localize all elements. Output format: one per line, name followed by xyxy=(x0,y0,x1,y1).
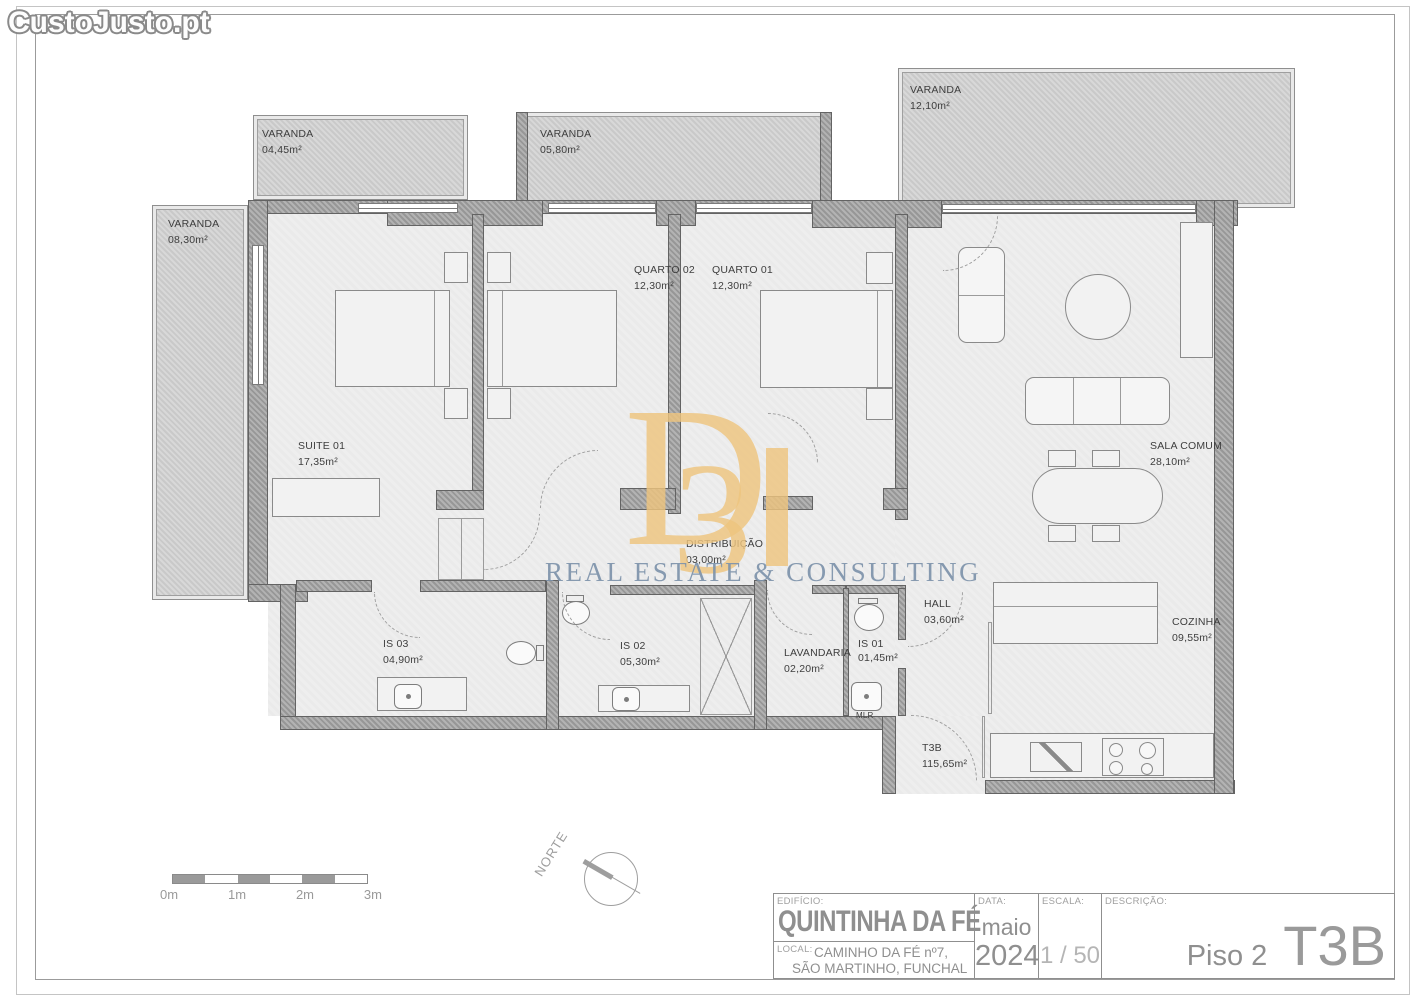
island-line xyxy=(994,606,1157,607)
nightstand xyxy=(866,252,893,284)
bathroom-sink xyxy=(394,684,422,709)
data-label: DATA: xyxy=(978,896,1006,907)
balcony-left xyxy=(152,205,248,600)
scale-seg xyxy=(335,875,367,883)
wall-entry-step xyxy=(882,716,896,794)
room-name: VARANDA xyxy=(262,126,313,142)
kitchen-cabinet-line xyxy=(988,622,992,714)
bed xyxy=(335,290,450,387)
room-area: 02,20m² xyxy=(784,661,851,677)
wall-bath-top xyxy=(420,580,546,592)
room-name: IS 03 xyxy=(383,636,423,652)
wardrobe-line xyxy=(461,519,462,579)
stove-hob xyxy=(1102,738,1164,776)
nightstand xyxy=(487,388,511,419)
room-label-varanda-05: VARANDA 05,80m² xyxy=(540,126,591,159)
scale-seg xyxy=(270,875,302,883)
room-label-is03: IS 03 04,90m² xyxy=(383,636,423,669)
room-label-varanda-08: VARANDA 08,30m² xyxy=(168,216,219,249)
room-area: 12,30m² xyxy=(634,278,695,294)
wall-bottom-right xyxy=(985,780,1235,794)
burner xyxy=(1109,743,1123,757)
room-label-quarto01: QUARTO 01 12,30m² xyxy=(712,262,773,295)
titleblock-local-cell: LOCAL: CAMINHO DA FÉ nº7, SÃO MARTINHO, … xyxy=(774,942,974,979)
room-label-varanda-12: VARANDA 12,10m² xyxy=(910,82,961,115)
scale-label: 2m xyxy=(296,887,314,902)
scale-value: 1 / 50 xyxy=(1039,942,1101,970)
scale-label: 0m xyxy=(160,887,178,902)
sofa xyxy=(1025,377,1170,425)
wall-pillar xyxy=(812,200,942,228)
room-label-varanda-04: VARANDA 04,45m² xyxy=(262,126,313,159)
nightstand xyxy=(444,252,468,283)
wall-bath-top xyxy=(296,580,372,592)
window xyxy=(358,203,458,213)
kitchen-island xyxy=(993,582,1158,644)
titleblock-edificio-cell: EDIFÍCIO: QUINTINHA DA FÉ xyxy=(774,894,974,942)
scale-bar xyxy=(172,874,368,884)
sofa-seat-line xyxy=(959,295,1004,296)
wall-bottom-left xyxy=(280,716,896,730)
room-label-hall: HALL 03,60m² xyxy=(924,596,964,629)
room-name: QUARTO 02 xyxy=(634,262,695,278)
floor-plan: MLR VARANDA 04,45m² VARANDA 05,80m² VARA… xyxy=(0,0,1414,1000)
round-table xyxy=(1065,274,1131,340)
wall-right xyxy=(1214,200,1234,794)
room-label-sala-comum: SALA COMUM 28,10m² xyxy=(1150,438,1222,471)
room-name: LAVANDARIA xyxy=(784,645,851,661)
nightstand xyxy=(444,388,468,419)
wall-is03-is02 xyxy=(546,580,559,730)
wall-corridor xyxy=(436,490,484,510)
kitchen-sink xyxy=(1030,742,1082,772)
room-area: 115,65m² xyxy=(922,756,967,772)
dining-chair xyxy=(1048,450,1076,467)
room-name: IS 02 xyxy=(620,638,660,654)
room-area: 12,30m² xyxy=(712,278,773,294)
bed-fold-line xyxy=(877,291,878,387)
room-label-t3b-total: T3B 115,65m² xyxy=(922,740,967,773)
scale-label: 1m xyxy=(228,887,246,902)
wall-is01-hall xyxy=(898,668,906,716)
date-year: 2024 xyxy=(975,942,1038,971)
room-label-lavandaria: LAVANDARIA 02,20m² xyxy=(784,645,851,678)
room-label-cozinha: COZINHA 09,55m² xyxy=(1172,614,1221,647)
burner xyxy=(1109,761,1123,775)
burner xyxy=(1139,742,1156,759)
vanity-counter xyxy=(377,677,467,711)
d3-logo-bar-icon xyxy=(766,448,788,566)
room-label-suite01: SUITE 01 17,35m² xyxy=(298,438,345,471)
dining-chair xyxy=(1092,450,1120,467)
room-area: 05,80m² xyxy=(540,142,591,158)
room-area: 09,55m² xyxy=(1172,630,1221,646)
address-line1: CAMINHO DA FÉ nº7, xyxy=(814,945,948,961)
wall-is01-hall xyxy=(898,588,906,640)
wall-quarto01-sala xyxy=(895,214,908,520)
address-line2: SÃO MARTINHO, FUNCHAL xyxy=(792,961,967,977)
sofa-seat-line xyxy=(1073,378,1074,424)
agency-subtitle: REAL ESTATE & CONSULTING xyxy=(545,557,981,588)
scale-labels: 0m 1m 2m 3m xyxy=(160,887,382,902)
burner xyxy=(1141,763,1153,775)
wall-left-lower xyxy=(280,584,296,730)
toilet xyxy=(854,604,884,631)
room-name: VARANDA xyxy=(910,82,961,98)
room-label-is01: IS 01 01,45m² xyxy=(858,638,898,665)
dresser xyxy=(272,478,380,517)
balcony-rail-pier xyxy=(516,112,528,205)
sofa-seat-line xyxy=(1120,378,1121,424)
room-area: 04,90m² xyxy=(383,652,423,668)
room-label-quarto02: QUARTO 02 12,30m² xyxy=(634,262,695,295)
room-area: 28,10m² xyxy=(1150,454,1222,470)
toilet-tank xyxy=(858,598,878,604)
room-name: VARANDA xyxy=(168,216,219,232)
local-label: LOCAL: xyxy=(777,944,813,955)
balcony-rail-pier xyxy=(820,112,832,205)
door-leaf xyxy=(982,716,985,778)
shower xyxy=(700,598,752,715)
floor-name: Piso 2 xyxy=(1187,940,1268,973)
typology: T3B xyxy=(1283,921,1386,971)
bed xyxy=(760,290,893,388)
nightstand xyxy=(487,252,511,283)
dining-chair xyxy=(1092,525,1120,542)
window xyxy=(696,203,812,213)
room-name: IS 01 xyxy=(858,638,898,652)
bed-fold-line xyxy=(502,291,503,386)
mlr-annotation: MLR xyxy=(856,710,874,722)
wall-corridor xyxy=(883,488,908,510)
room-name: T3B xyxy=(922,740,967,756)
room-name: QUARTO 01 xyxy=(712,262,773,278)
bed xyxy=(487,290,617,387)
bathroom-sink xyxy=(612,687,640,711)
dining-chair xyxy=(1048,525,1076,542)
date-month: maio xyxy=(975,916,1038,939)
scale-label: 3m xyxy=(364,887,382,902)
room-area: 05,30m² xyxy=(620,654,660,670)
scale-seg xyxy=(173,875,205,883)
building-name: QUINTINHA DA FÉ xyxy=(778,905,981,940)
window xyxy=(252,245,264,385)
dining-table xyxy=(1032,468,1163,524)
room-name: COZINHA xyxy=(1172,614,1221,630)
room-area: 01,45m² xyxy=(858,652,898,666)
room-area: 03,60m² xyxy=(924,612,964,628)
descricao-label: DESCRIÇÃO: xyxy=(1105,896,1167,907)
bed-fold-line xyxy=(434,291,435,386)
room-area: 17,35m² xyxy=(298,454,345,470)
toilet xyxy=(506,641,536,665)
room-label-is02: IS 02 05,30m² xyxy=(620,638,660,671)
floor-plan-page: CustoJusto.pt xyxy=(0,0,1414,1000)
toilet-tank xyxy=(536,645,544,661)
escala-label: ESCALA: xyxy=(1042,896,1084,907)
wall-suite-quarto02 xyxy=(472,214,484,506)
titleblock-descricao-cell: DESCRIÇÃO: Piso 2 T3B xyxy=(1101,894,1394,979)
scale-seg xyxy=(302,875,334,883)
custojusto-watermark: CustoJusto.pt xyxy=(8,6,210,40)
scale-seg xyxy=(205,875,237,883)
window xyxy=(942,204,1196,213)
scale-seg xyxy=(238,875,270,883)
titleblock-escala-cell: ESCALA: 1 / 50 xyxy=(1038,894,1101,979)
wardrobe xyxy=(438,518,484,580)
nightstand xyxy=(866,388,893,420)
titleblock-data-cell: DATA: maio 2024 xyxy=(974,894,1038,979)
window xyxy=(548,203,656,213)
washing-machine xyxy=(851,682,882,711)
room-name: VARANDA xyxy=(540,126,591,142)
sideboard xyxy=(1180,222,1213,358)
room-area: 12,10m² xyxy=(910,98,961,114)
wall-is02-lavandaria xyxy=(754,580,767,730)
room-name: HALL xyxy=(924,596,964,612)
title-block: EDIFÍCIO: QUINTINHA DA FÉ LOCAL: CAMINHO… xyxy=(773,893,1395,979)
room-name: SALA COMUM xyxy=(1150,438,1222,454)
room-area: 08,30m² xyxy=(168,232,219,248)
room-name: SUITE 01 xyxy=(298,438,345,454)
room-area: 04,45m² xyxy=(262,142,313,158)
